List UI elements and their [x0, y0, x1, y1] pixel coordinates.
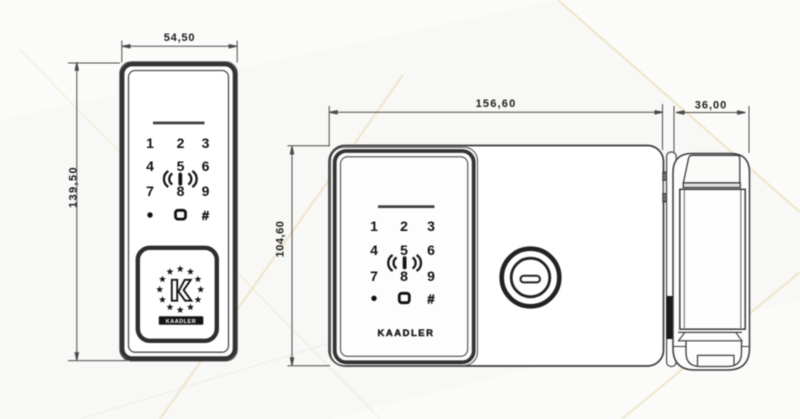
svg-text:7: 7 [370, 268, 378, 284]
svg-text:4: 4 [370, 242, 378, 258]
svg-text:4: 4 [146, 158, 154, 174]
svg-text:5: 5 [177, 158, 185, 174]
svg-text:9: 9 [427, 268, 435, 284]
svg-text:104,60: 104,60 [275, 221, 287, 258]
svg-text:KAADLER: KAADLER [166, 319, 196, 325]
svg-text:5: 5 [400, 242, 408, 258]
svg-text:7: 7 [146, 183, 154, 199]
svg-text:139,50: 139,50 [68, 166, 80, 208]
svg-text:1: 1 [370, 218, 378, 234]
svg-text:54,50: 54,50 [164, 32, 196, 44]
svg-text:1: 1 [146, 135, 154, 151]
svg-text:6: 6 [202, 158, 210, 174]
svg-text:#: # [202, 208, 210, 223]
svg-text:#: # [427, 291, 435, 306]
svg-text:3: 3 [427, 218, 435, 234]
svg-text:3: 3 [202, 135, 210, 151]
svg-text:KAADLER: KAADLER [378, 328, 435, 339]
svg-text:2: 2 [177, 135, 185, 151]
svg-text:8: 8 [400, 268, 408, 284]
svg-text:6: 6 [427, 242, 435, 258]
svg-text:2: 2 [400, 218, 408, 234]
svg-text:9: 9 [202, 183, 210, 199]
svg-text:36,00: 36,00 [695, 100, 728, 112]
svg-text:156,60: 156,60 [476, 98, 517, 110]
